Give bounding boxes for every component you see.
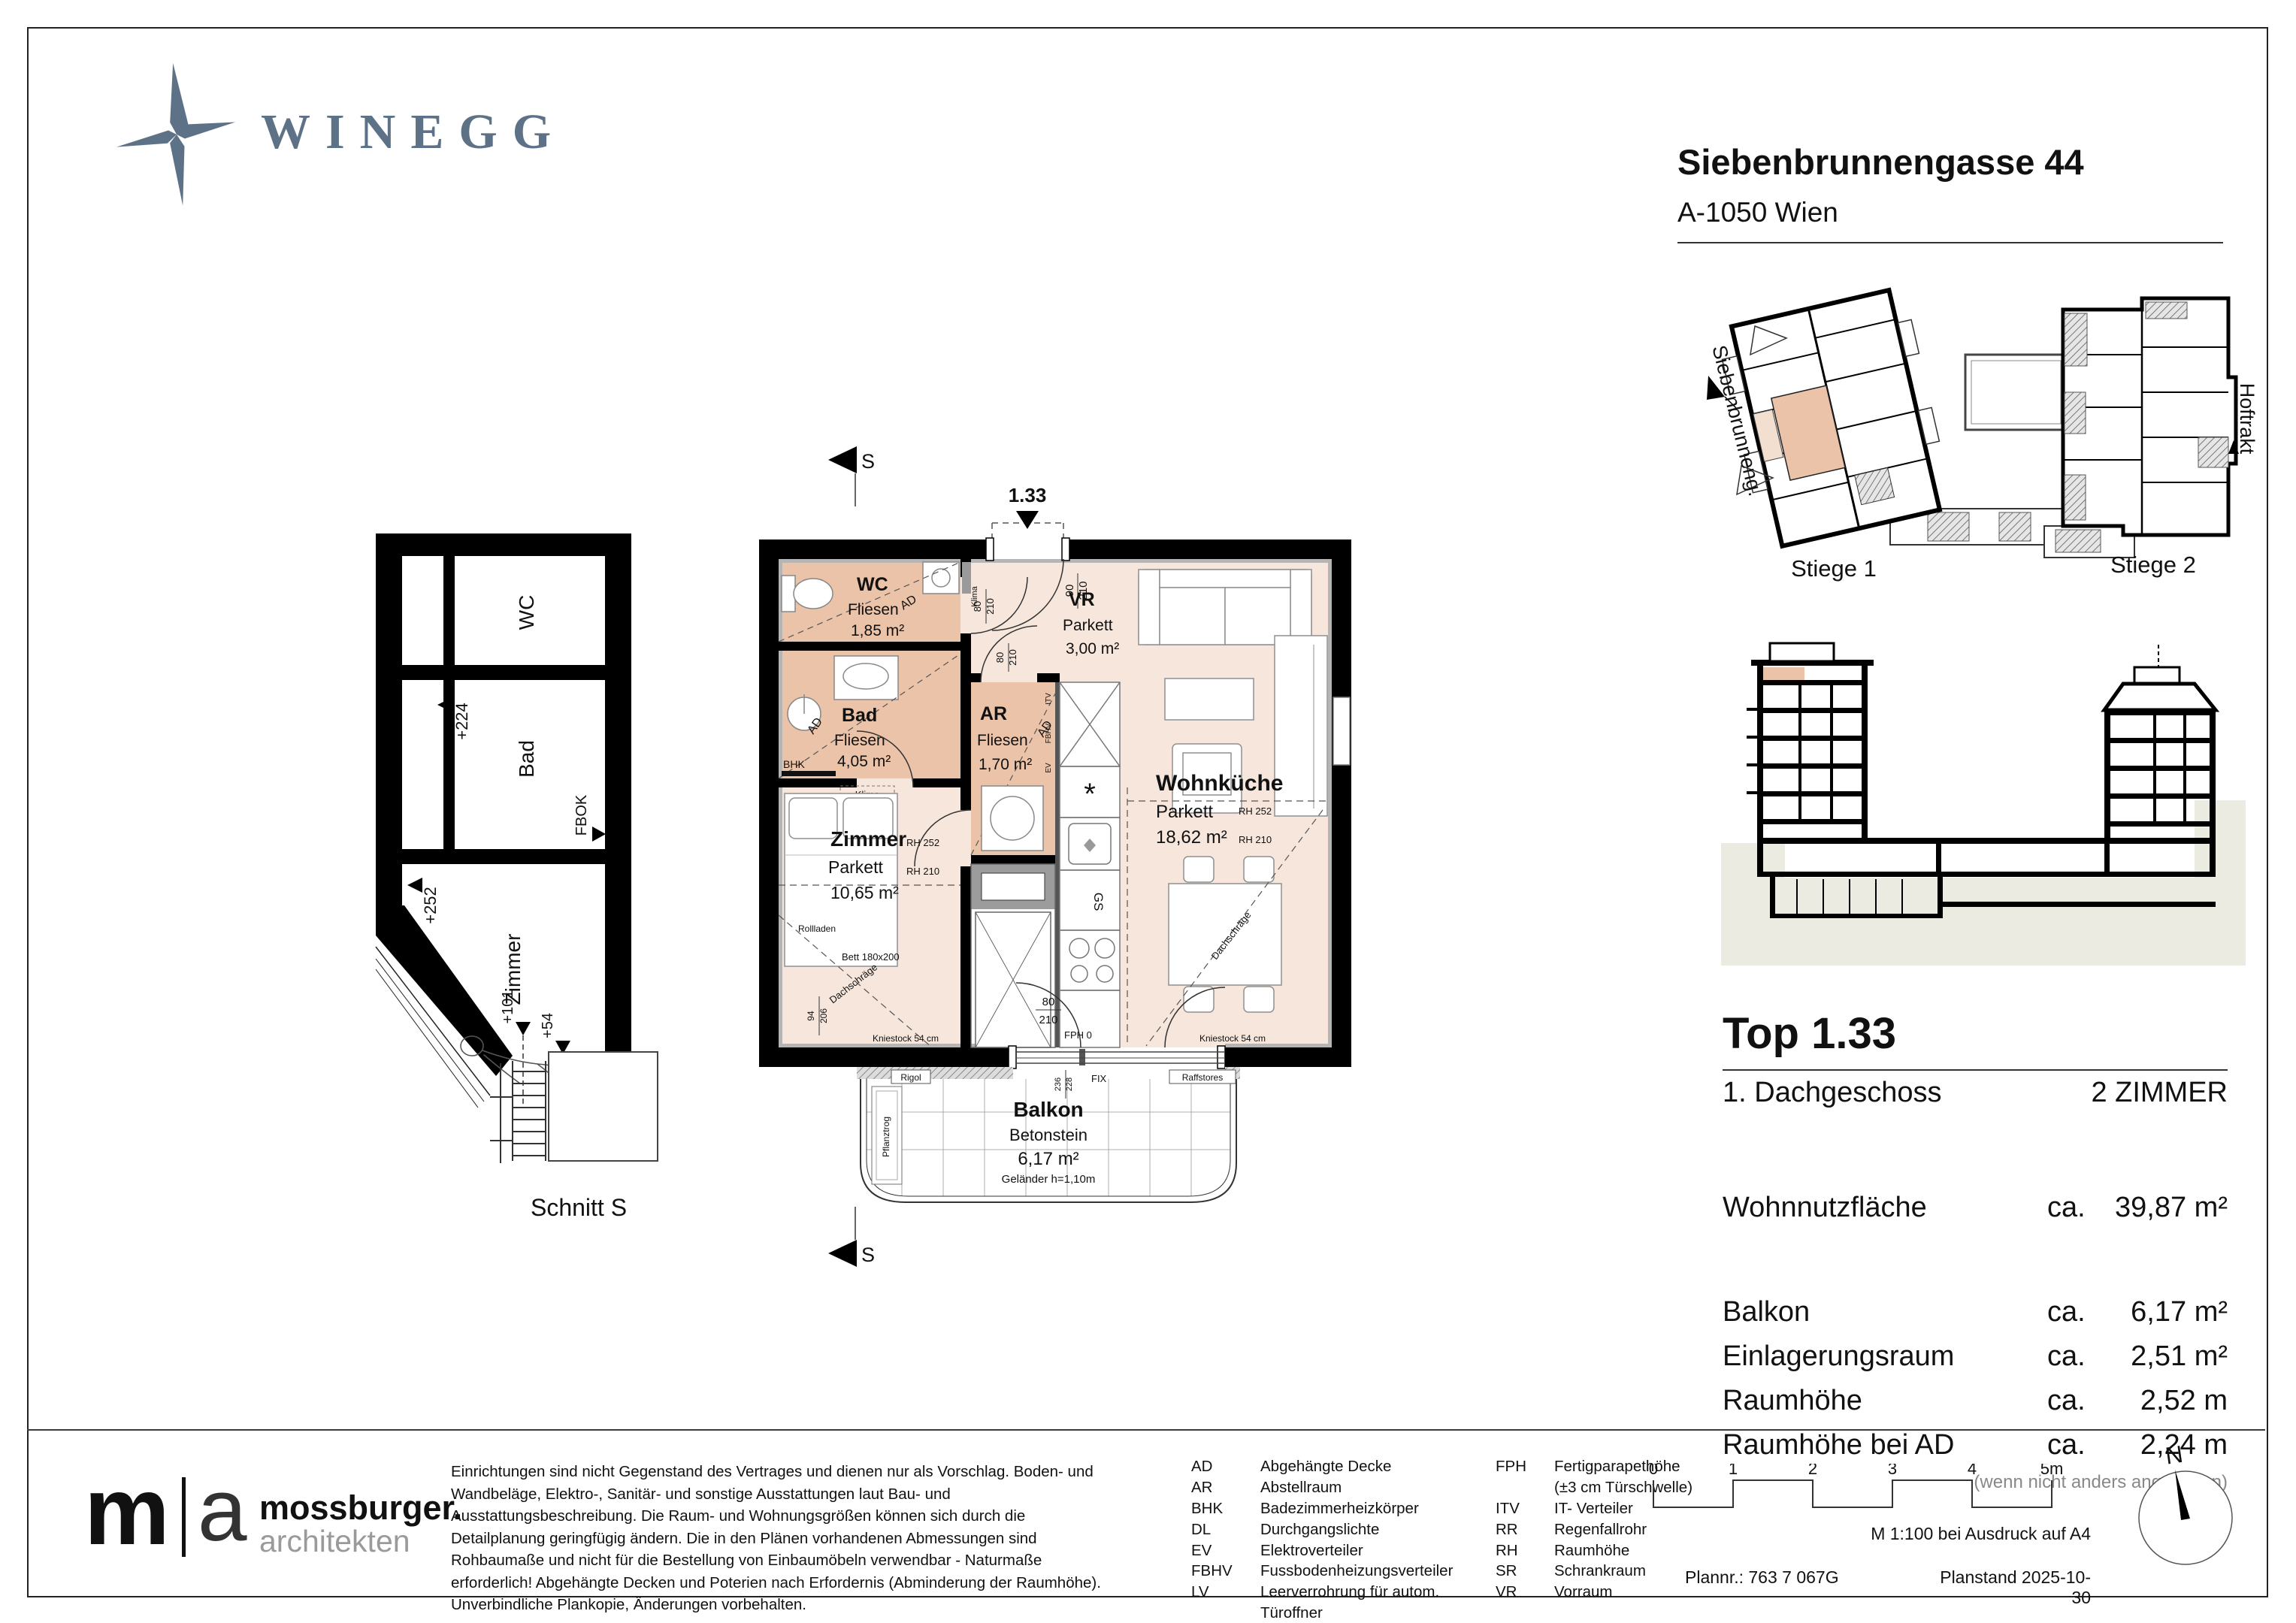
svg-text:10,65 m²: 10,65 m² [830, 883, 899, 902]
title-divider [1677, 242, 2223, 243]
balcony: Pflanztrog Rigol Raffstores Balkon Beton… [857, 1067, 1240, 1202]
svg-text:1,70 m²: 1,70 m² [979, 756, 1032, 773]
svg-text:RH 210: RH 210 [906, 866, 939, 877]
svg-text:Parkett: Parkett [1156, 802, 1213, 822]
svg-text:228: 228 [1065, 1077, 1074, 1091]
architect-sub: architekten [259, 1526, 462, 1557]
site-stiege1-building [1716, 287, 1955, 550]
svg-text:RH 252: RH 252 [906, 837, 939, 848]
svg-text:Rollladen: Rollladen [798, 923, 836, 934]
svg-text:+224: +224 [452, 703, 471, 740]
stiege1-label: Stiege 1 [1791, 555, 1877, 582]
svg-text:RH 210: RH 210 [1239, 834, 1272, 845]
svg-text:Balkon: Balkon [1013, 1098, 1083, 1121]
svg-text:4: 4 [1968, 1464, 1977, 1478]
svg-text:FBHV: FBHV [1045, 723, 1053, 743]
floor-plan: 90 210 1.33 S S WC Fliesen 1 [744, 434, 1368, 1291]
svg-text:S: S [861, 1244, 875, 1266]
north-compass: N [2127, 1444, 2243, 1576]
section-lower-room [549, 1052, 658, 1161]
left-tower [1747, 643, 1874, 843]
plan-date: Planstand 2025-10-30 [1924, 1567, 2091, 1608]
room-count: 2 ZIMMER [2091, 1077, 2228, 1109]
kitchen-strip-bg [1055, 682, 1120, 1047]
hoftrakt-label: Hoftrakt [2236, 383, 2258, 455]
unit-title: Top 1.33 [1723, 1008, 2228, 1071]
svg-text:Kniestock 54 cm: Kniestock 54 cm [1199, 1033, 1266, 1044]
svg-text:94: 94 [806, 1011, 816, 1021]
architect-name: mossburger. [259, 1491, 462, 1525]
svg-text:80: 80 [972, 601, 983, 612]
stiege2-label: Stiege 2 [2110, 552, 2196, 578]
footer-divider [27, 1429, 2265, 1431]
logo-m: m [84, 1474, 167, 1549]
svg-text:Zimmer: Zimmer [830, 827, 906, 851]
architect-name-block: mossburger. architekten [259, 1491, 462, 1557]
svg-text:80: 80 [994, 652, 1006, 663]
architect-logo: m a [84, 1474, 247, 1557]
sink-symbol: * [1084, 778, 1096, 811]
metric-einlagerungsraum: Einlagerungsraum ca. 2,51 m² [1723, 1340, 2228, 1373]
svg-text:236: 236 [1054, 1077, 1063, 1091]
svg-text:2: 2 [1808, 1464, 1817, 1478]
svg-text:Rigol: Rigol [900, 1072, 921, 1083]
section-schnitt-s: WC Bad Zimmer +224 FBOK +252 +101 +54 [323, 526, 684, 1292]
svg-text:S: S [861, 450, 875, 473]
unit-number: 1.33 [1009, 484, 1047, 506]
metric-raumhoehe: Raumhöhe ca. 2,52 m [1723, 1385, 2228, 1417]
svg-text:Bett 180x200: Bett 180x200 [842, 951, 900, 963]
metric-balkon: Balkon ca. 6,17 m² [1723, 1296, 2228, 1328]
plan-sheet: WINEGG Siebenbrunnengasse 44 A-1050 Wien [0, 0, 2296, 1623]
svg-text:Bad: Bad [842, 705, 877, 726]
section-slab-1 [402, 665, 605, 680]
svg-text:80: 80 [1042, 996, 1055, 1008]
svg-text:210: 210 [985, 598, 996, 615]
section-marker-top: S [828, 446, 875, 506]
unit-info-panel: Top 1.33 1. Dachgeschoss 2 ZIMMER Wohnnu… [1723, 1008, 2228, 1493]
svg-text:Betonstein: Betonstein [1009, 1126, 1087, 1144]
marker-fbok: FBOK [573, 794, 606, 842]
floor-level: 1. Dachgeschoss [1723, 1077, 2091, 1109]
svg-text:0: 0 [1649, 1464, 1658, 1478]
logo-bar [182, 1477, 186, 1557]
section-railing [490, 1061, 546, 1163]
unit-arrow-icon [1016, 511, 1039, 529]
scale-note: M 1:100 bei Ausdruck auf A4 [1804, 1524, 2091, 1544]
north-label: N [2164, 1444, 2185, 1470]
svg-text:Wohnküche: Wohnküche [1156, 771, 1283, 796]
svg-text:Parkett: Parkett [828, 857, 883, 877]
project-title: Siebenbrunnengasse 44 [1677, 141, 2226, 183]
svg-text:BHK: BHK [783, 758, 805, 770]
section-marker-bottom: S [828, 1207, 875, 1267]
metric-wohnnutzflaeche: Wohnnutzfläche ca. 39,87 m² [1723, 1192, 2228, 1224]
section-slab-2 [402, 849, 605, 864]
svg-text:+101: +101 [500, 990, 516, 1023]
marker-224: +224 [437, 697, 471, 740]
site-plan: Siebenbrunneng. Hoftrakt Stiege 1 Stiege… [1702, 287, 2262, 595]
svg-text:Pflanztrog: Pflanztrog [881, 1117, 891, 1157]
svg-text:6,17 m²: 6,17 m² [1018, 1149, 1078, 1169]
schnitt-label: Schnitt S [531, 1194, 627, 1221]
brand-logo-text: WINEGG [261, 104, 566, 161]
svg-text:3: 3 [1888, 1464, 1897, 1478]
building-section [1714, 639, 2258, 969]
svg-text:210: 210 [1039, 1014, 1057, 1026]
site-stiege2-building [2063, 298, 2236, 535]
plan-number: Plannr.: 763 7 067G [1685, 1567, 1839, 1588]
svg-text:3,00 m²: 3,00 m² [1066, 640, 1119, 657]
legend-column-1: ADAbgehängte Decke ARAbstellraum BHKBade… [1191, 1456, 1492, 1623]
svg-text:WC: WC [857, 574, 888, 595]
svg-text:FIX: FIX [1091, 1073, 1107, 1084]
svg-text:AR: AR [980, 703, 1007, 724]
svg-text:RH 252: RH 252 [1239, 805, 1272, 817]
svg-text:VR: VR [1069, 589, 1095, 610]
svg-text:5m: 5m [2040, 1464, 2064, 1478]
svg-text:18,62 m²: 18,62 m² [1156, 827, 1227, 848]
scale-bar: 0 1 2 3 4 5m [1646, 1464, 2097, 1516]
svg-text:Kniestock 54 cm: Kniestock 54 cm [873, 1033, 939, 1044]
svg-text:ITV: ITV [1045, 693, 1053, 705]
svg-text:Geländer h=1,10m: Geländer h=1,10m [1002, 1173, 1096, 1186]
svg-text:206: 206 [818, 1008, 829, 1023]
svg-text:Raffstores: Raffstores [1182, 1072, 1223, 1083]
svg-text:FPH 0: FPH 0 [1064, 1029, 1092, 1041]
section-room-bad: Bad [515, 740, 538, 778]
svg-text:Fliesen: Fliesen [848, 601, 899, 618]
svg-text:Fliesen: Fliesen [977, 732, 1028, 749]
site-courtyard [1965, 355, 2067, 430]
svg-text:EV: EV [1045, 763, 1053, 773]
svg-text:4,05 m²: 4,05 m² [837, 753, 891, 770]
project-address: A-1050 Wien [1677, 197, 1838, 228]
svg-text:210: 210 [1007, 649, 1018, 666]
winegg-star-icon [113, 63, 240, 206]
svg-text:1,85 m²: 1,85 m² [851, 622, 904, 639]
section-room-wc: WC [515, 595, 538, 630]
svg-text:FBOK: FBOK [573, 794, 590, 836]
dishwasher-label: GS [1091, 893, 1106, 911]
disclaimer-text: Einrichtungen sind nicht Gegenstand des … [451, 1461, 1112, 1616]
svg-text:+54: +54 [540, 1013, 556, 1038]
logo-a: a [198, 1474, 247, 1547]
svg-text:+252: +252 [421, 887, 440, 924]
right-wall-window [1333, 697, 1350, 765]
svg-text:Parkett: Parkett [1063, 617, 1113, 634]
svg-text:1: 1 [1729, 1464, 1738, 1478]
